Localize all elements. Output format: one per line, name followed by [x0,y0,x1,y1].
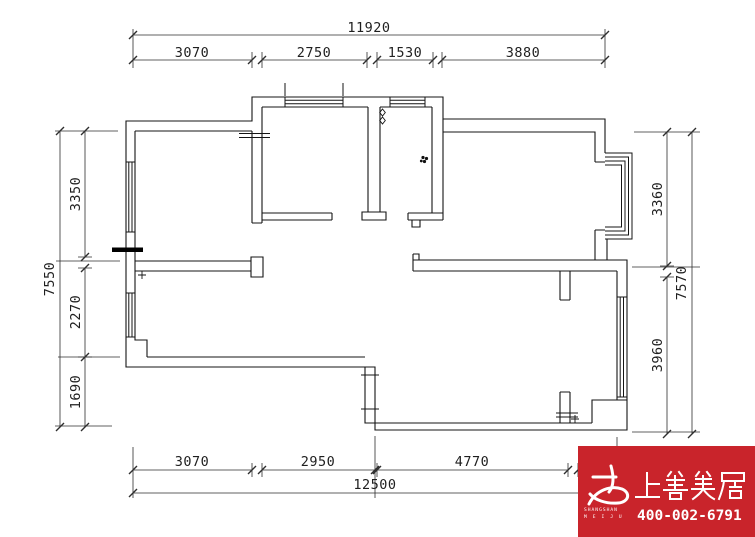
brand-pinyin-line1: SHANGSHAN [584,507,618,513]
window-right-lower [617,297,627,397]
door-opening-marks [239,134,578,418]
dim-top-seg-1: 3070 [175,45,210,61]
brand-logo: 上善美居 SHANGSHAN M E I J U 400-002-6791 [578,446,755,537]
cross-marks [138,271,579,423]
dim-top-seg-2: 2750 [297,45,332,61]
window-left-lower [126,293,135,337]
floor-plan-page: 11920 3070 2750 1530 3880 3070 2950 4770… [0,0,755,537]
dim-left-total: 7550 [42,262,58,297]
dim-top-seg-4: 3880 [506,45,541,61]
dim-bottom-total: 12500 [353,477,396,493]
floor-plan-canvas: 11920 3070 2750 1530 3880 3070 2950 4770… [0,0,755,537]
interior-walls [135,107,617,423]
dim-right-total: 7570 [674,266,690,301]
plant-symbol [420,156,428,163]
dim-left-seg-2: 2270 [68,295,84,330]
window-top-b [390,97,425,107]
dim-bottom-seg-1: 3070 [175,454,210,470]
window-top-a-bracket [285,83,343,96]
dim-bottom-seg-2: 2950 [301,454,336,470]
dimension-lines-left [55,127,120,431]
bay-window [595,153,632,239]
dim-bottom-seg-3: 4770 [455,454,490,470]
brand-phone-number: 400-002-6791 [637,508,742,524]
dim-top-total: 11920 [347,20,390,36]
window-left-upper [126,162,135,232]
dim-top-seg-3: 1530 [388,45,423,61]
windows [126,83,632,397]
section-cut-mark [112,248,143,253]
exterior-walls [126,97,627,430]
dim-right-seg-1: 3360 [650,182,666,217]
dim-left-seg-3: 1690 [68,375,84,410]
dim-left-seg-1: 3350 [68,177,84,212]
dimension-labels: 11920 3070 2750 1530 3880 3070 2950 4770… [42,20,690,493]
brand-pinyin-line2: M E I J U [584,514,623,520]
dim-right-seg-2: 3960 [650,338,666,373]
window-top-a [285,97,343,107]
